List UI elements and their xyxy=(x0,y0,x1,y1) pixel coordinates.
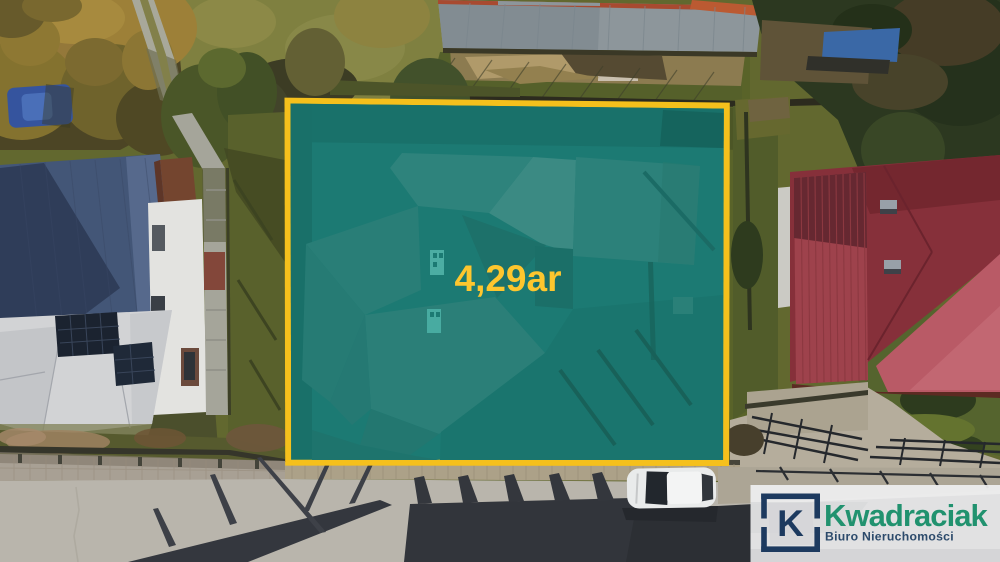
svg-text:4,29ar: 4,29ar xyxy=(455,258,562,299)
svg-text:Biuro Nieruchomości: Biuro Nieruchomości xyxy=(825,530,954,544)
svg-text:Kwadraciak: Kwadraciak xyxy=(824,498,989,533)
svg-text:K: K xyxy=(777,503,804,544)
